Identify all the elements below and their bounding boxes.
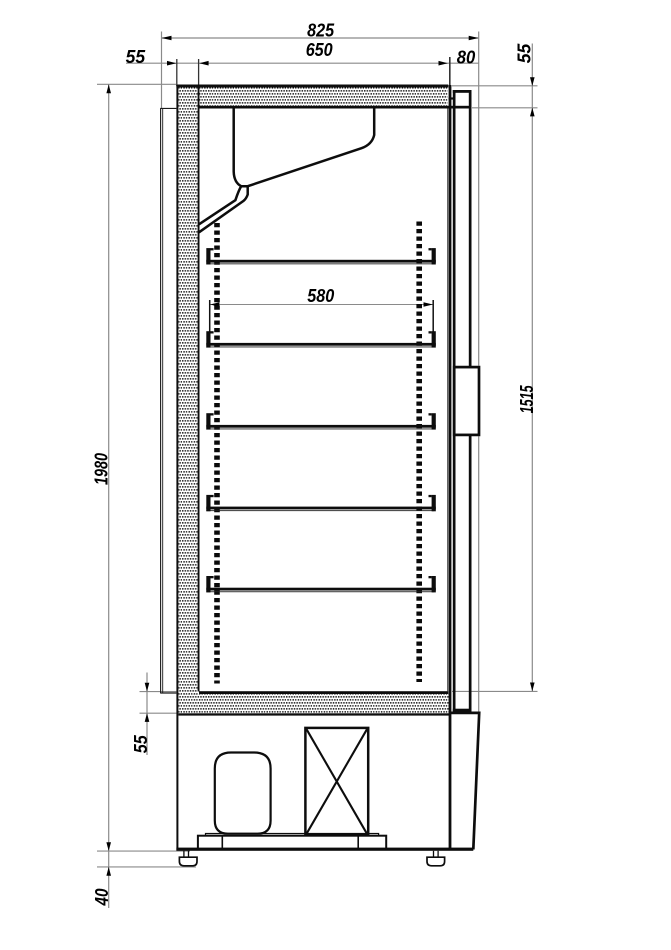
svg-text:1515: 1515 (516, 385, 537, 413)
svg-text:40: 40 (91, 888, 112, 906)
svg-text:80: 80 (457, 47, 476, 68)
svg-text:55: 55 (130, 735, 151, 754)
svg-text:55: 55 (126, 46, 146, 67)
svg-text:1980: 1980 (91, 452, 112, 485)
svg-text:580: 580 (307, 285, 335, 306)
svg-text:55: 55 (514, 43, 535, 63)
svg-text:825: 825 (307, 20, 335, 41)
svg-text:650: 650 (306, 39, 334, 60)
